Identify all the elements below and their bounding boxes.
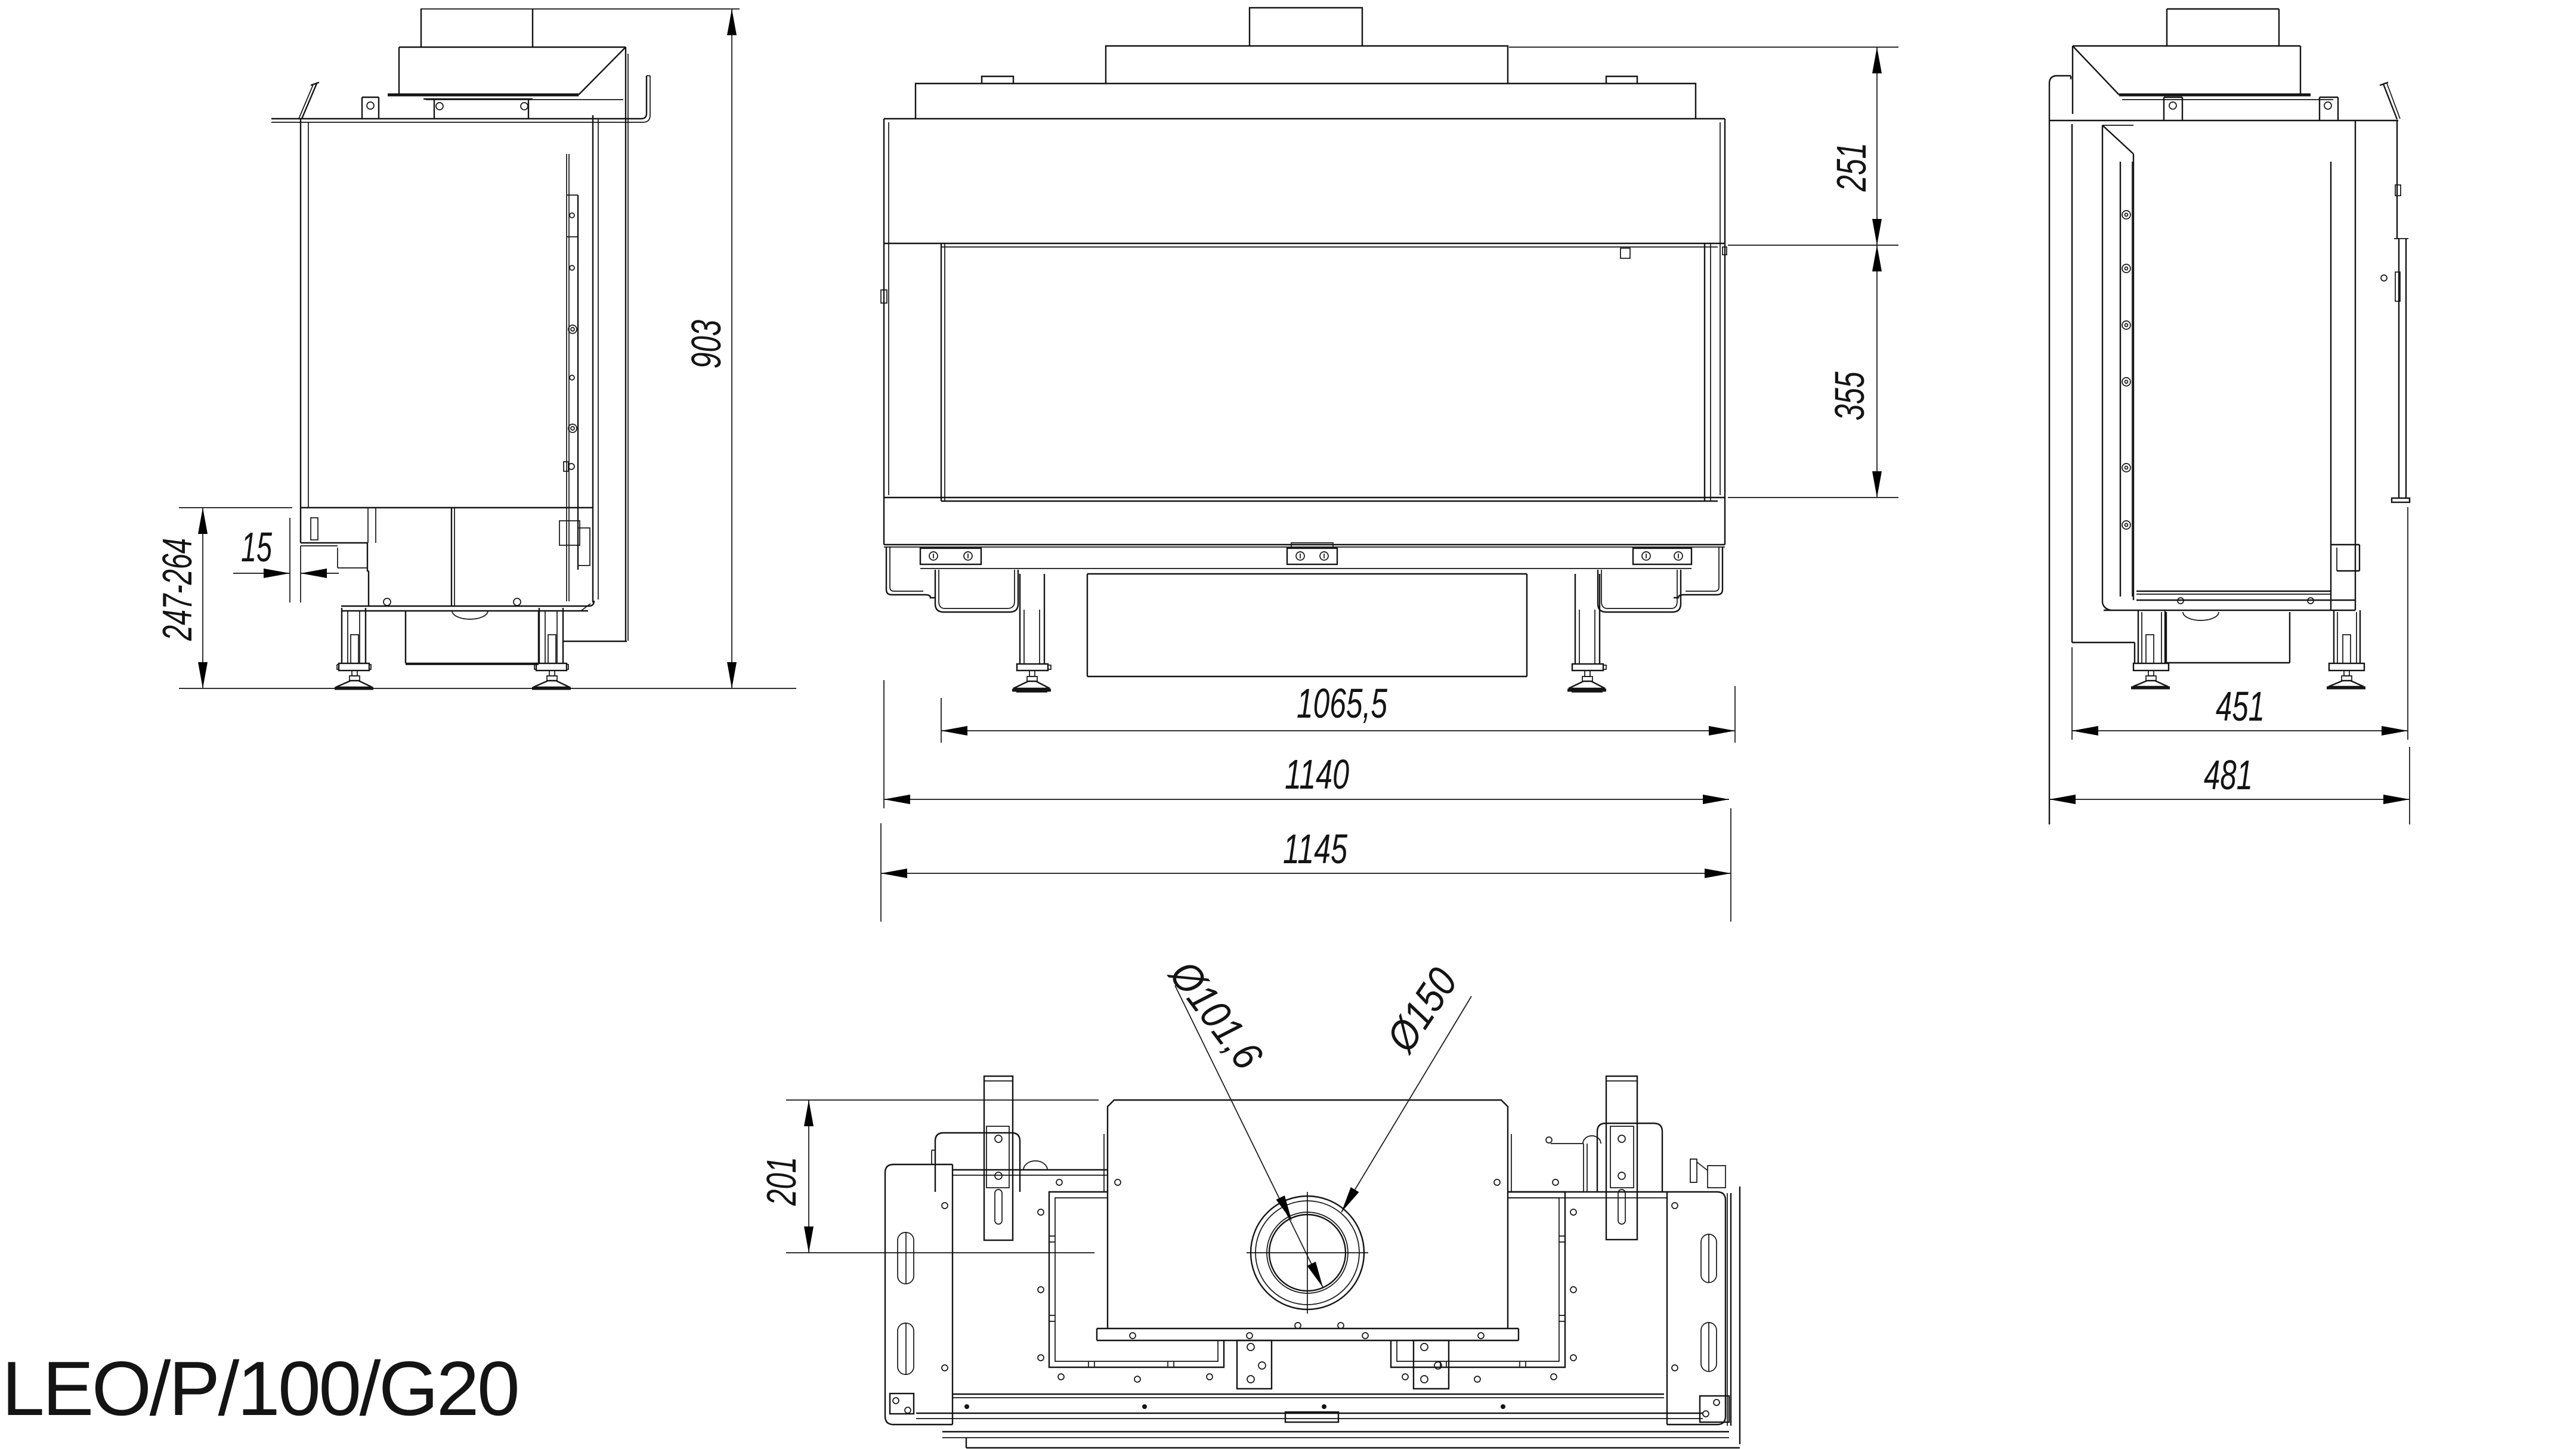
svg-text:251: 251 [1828, 143, 1875, 192]
svg-text:481: 481 [2204, 752, 2253, 798]
svg-text:LEO/P/100/G20: LEO/P/100/G20 [2, 1346, 518, 1432]
svg-text:903: 903 [683, 320, 729, 369]
svg-text:1065,5: 1065,5 [1297, 680, 1388, 727]
svg-text:15: 15 [241, 524, 273, 570]
svg-text:355: 355 [1826, 371, 1873, 421]
svg-text:Ø150: Ø150 [1377, 960, 1467, 1061]
svg-text:1145: 1145 [1283, 826, 1348, 872]
svg-text:Ø101,6: Ø101,6 [1160, 951, 1272, 1078]
svg-text:247-264: 247-264 [154, 538, 200, 641]
svg-text:451: 451 [2216, 683, 2265, 730]
svg-text:201: 201 [758, 1157, 805, 1206]
svg-text:1140: 1140 [1285, 751, 1349, 798]
